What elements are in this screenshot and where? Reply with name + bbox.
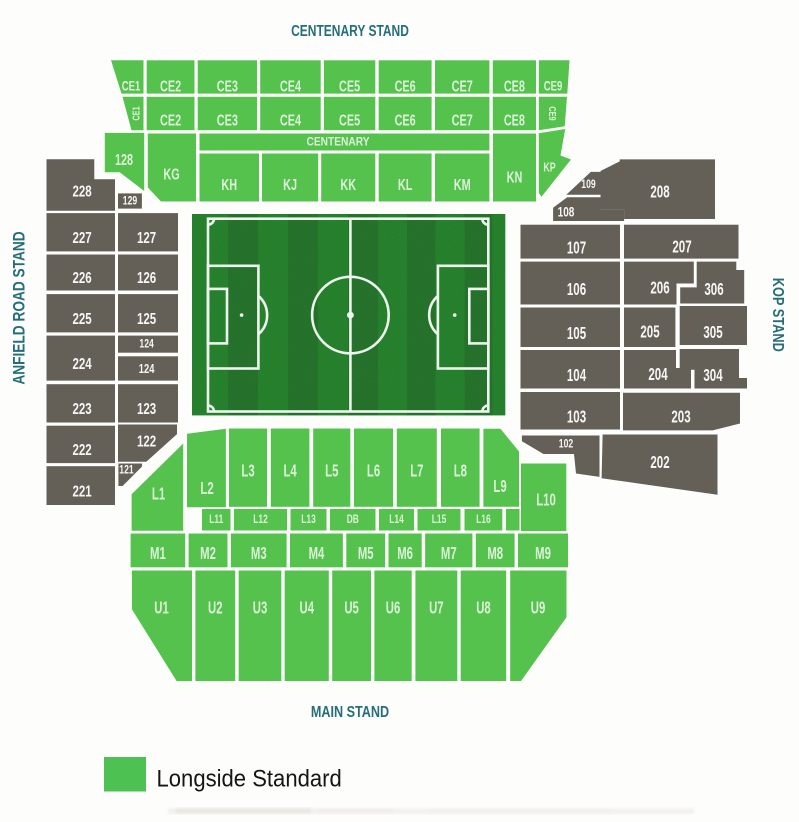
svg-text:202: 202 — [650, 454, 669, 473]
svg-text:M5: M5 — [358, 543, 374, 563]
svg-text:CE5: CE5 — [339, 77, 360, 95]
svg-text:KM: KM — [454, 176, 471, 194]
svg-text:L5: L5 — [325, 461, 338, 481]
svg-text:225: 225 — [72, 309, 91, 327]
svg-text:CE8: CE8 — [504, 111, 525, 129]
svg-text:M1: M1 — [150, 543, 166, 563]
svg-text:KL: KL — [398, 176, 413, 194]
svg-text:206: 206 — [650, 280, 669, 299]
svg-text:228: 228 — [72, 182, 91, 200]
svg-text:124: 124 — [139, 363, 155, 377]
svg-text:CE4: CE4 — [280, 77, 301, 95]
svg-text:128: 128 — [115, 151, 134, 168]
svg-text:205: 205 — [640, 324, 659, 343]
svg-text:M6: M6 — [397, 543, 413, 563]
svg-text:L3: L3 — [241, 461, 254, 481]
svg-text:M2: M2 — [200, 543, 216, 563]
svg-text:305: 305 — [703, 324, 722, 343]
svg-text:122: 122 — [137, 432, 156, 450]
svg-text:306: 306 — [704, 281, 723, 300]
svg-text:CENTENARY STAND: CENTENARY STAND — [291, 21, 409, 39]
svg-text:203: 203 — [671, 409, 690, 428]
svg-text:304: 304 — [703, 367, 723, 386]
svg-text:123: 123 — [137, 399, 156, 417]
svg-text:CE3: CE3 — [217, 111, 238, 129]
svg-text:103: 103 — [567, 408, 586, 427]
svg-text:204: 204 — [648, 366, 668, 385]
svg-text:CE3: CE3 — [217, 77, 238, 95]
svg-text:L2: L2 — [200, 478, 213, 498]
svg-text:KN: KN — [507, 168, 523, 186]
svg-text:L1: L1 — [152, 484, 165, 504]
svg-text:106: 106 — [567, 281, 586, 300]
svg-text:108: 108 — [558, 204, 575, 220]
svg-text:U7: U7 — [429, 598, 443, 618]
svg-text:DB: DB — [347, 514, 359, 527]
svg-text:L8: L8 — [454, 461, 467, 481]
svg-text:CE8: CE8 — [504, 77, 525, 95]
svg-text:121: 121 — [119, 464, 134, 477]
svg-text:KOP STAND: KOP STAND — [769, 278, 787, 352]
svg-text:124: 124 — [139, 338, 154, 351]
svg-text:207: 207 — [672, 239, 691, 258]
svg-text:L9: L9 — [493, 476, 506, 496]
svg-text:U9: U9 — [531, 598, 545, 618]
svg-text:CE5: CE5 — [339, 111, 360, 129]
svg-text:CE4: CE4 — [280, 111, 301, 129]
svg-text:L11: L11 — [209, 514, 223, 527]
svg-text:227: 227 — [72, 228, 91, 246]
svg-text:M8: M8 — [487, 543, 503, 563]
svg-text:U6: U6 — [386, 598, 400, 618]
svg-text:223: 223 — [72, 399, 91, 417]
svg-text:ANFIELD ROAD STAND: ANFIELD ROAD STAND — [10, 231, 28, 384]
svg-text:M7: M7 — [441, 543, 457, 563]
svg-text:KH: KH — [221, 176, 237, 194]
svg-text:MAIN STAND: MAIN STAND — [311, 704, 389, 722]
svg-text:KK: KK — [340, 176, 356, 194]
svg-text:222: 222 — [72, 440, 91, 458]
svg-text:U3: U3 — [253, 598, 267, 618]
svg-text:CE7: CE7 — [452, 111, 473, 129]
svg-text:CE9: CE9 — [547, 106, 559, 120]
svg-text:107: 107 — [567, 239, 586, 258]
svg-text:221: 221 — [72, 481, 91, 499]
svg-text:U2: U2 — [208, 598, 222, 618]
svg-text:CE2: CE2 — [160, 77, 181, 95]
svg-text:208: 208 — [650, 184, 669, 203]
svg-text:L4: L4 — [283, 461, 297, 481]
svg-text:125: 125 — [137, 309, 156, 327]
svg-text:L13: L13 — [301, 514, 316, 527]
svg-text:126: 126 — [137, 268, 156, 286]
svg-text:CE6: CE6 — [395, 77, 416, 95]
svg-text:U5: U5 — [344, 598, 358, 618]
svg-text:L10: L10 — [536, 490, 556, 510]
svg-text:KP: KP — [543, 161, 556, 175]
svg-text:CE9: CE9 — [544, 78, 563, 94]
svg-text:L16: L16 — [476, 514, 491, 527]
svg-text:L14: L14 — [389, 514, 404, 527]
svg-text:CE1: CE1 — [122, 78, 141, 94]
svg-text:U4: U4 — [300, 598, 315, 618]
svg-text:226: 226 — [72, 268, 91, 286]
svg-text:L7: L7 — [410, 461, 423, 481]
svg-text:CE2: CE2 — [160, 111, 181, 129]
svg-text:127: 127 — [137, 228, 156, 246]
svg-text:CENTENARY: CENTENARY — [306, 136, 370, 149]
svg-text:KG: KG — [163, 165, 179, 183]
svg-text:CE1: CE1 — [130, 106, 142, 120]
svg-text:U8: U8 — [476, 598, 490, 618]
svg-text:Longside Standard: Longside Standard — [157, 764, 342, 791]
svg-text:L12: L12 — [253, 514, 268, 527]
svg-text:102: 102 — [559, 438, 574, 451]
svg-text:104: 104 — [567, 367, 587, 386]
svg-text:L15: L15 — [432, 514, 447, 527]
svg-text:KJ: KJ — [283, 176, 297, 194]
svg-text:M3: M3 — [251, 543, 267, 563]
svg-text:M4: M4 — [309, 543, 325, 563]
svg-text:129: 129 — [123, 195, 138, 208]
svg-text:CE7: CE7 — [452, 77, 473, 95]
svg-text:M9: M9 — [535, 543, 551, 563]
svg-text:109: 109 — [581, 179, 596, 192]
svg-text:CE6: CE6 — [395, 111, 416, 129]
svg-text:105: 105 — [567, 325, 586, 344]
svg-text:U1: U1 — [154, 598, 168, 618]
svg-text:224: 224 — [72, 354, 91, 372]
svg-text:L6: L6 — [367, 461, 380, 481]
